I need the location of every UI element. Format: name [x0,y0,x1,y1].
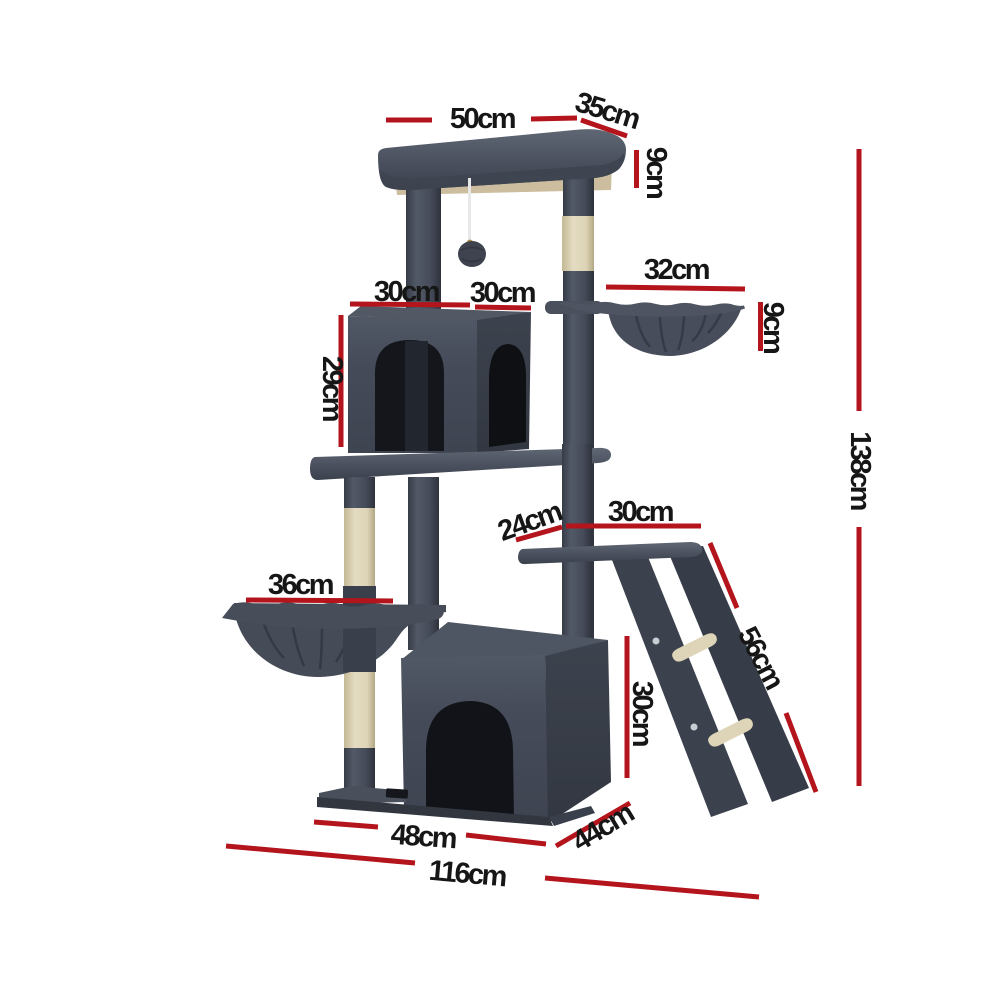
svg-text:50cm: 50cm [450,103,515,135]
svg-text:48cm: 48cm [390,819,457,855]
svg-text:29cm: 29cm [316,356,348,421]
svg-text:36cm: 36cm [268,569,333,601]
svg-text:9cm: 9cm [757,302,789,353]
svg-text:30cm: 30cm [626,681,658,746]
svg-text:116cm: 116cm [428,855,507,894]
svg-text:9cm: 9cm [640,147,672,198]
svg-text:138cm: 138cm [844,431,876,510]
svg-text:30cm: 30cm [608,496,673,528]
svg-text:30cm: 30cm [374,276,439,308]
svg-text:30cm: 30cm [470,277,535,309]
svg-text:32cm: 32cm [644,254,709,286]
